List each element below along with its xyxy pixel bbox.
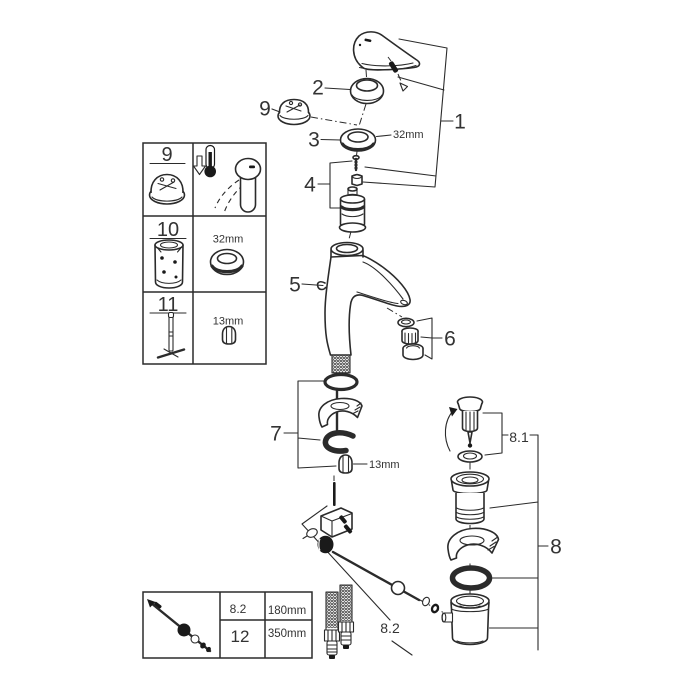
escutcheon-ring (351, 79, 384, 104)
table-handle-drawing (215, 159, 261, 214)
drain-wedge-gasket (448, 528, 499, 560)
callout-7-label: 7 (270, 423, 282, 446)
supply-hoses (325, 585, 354, 659)
callout-8-label: 8 (550, 536, 562, 559)
callout-5-label: 5 (289, 274, 301, 297)
stopper-seal (458, 451, 482, 462)
hose-table-rod-drawing (147, 599, 212, 653)
faucet-body (318, 243, 411, 356)
callout-1-label: 1 (454, 111, 466, 134)
popup-rod-assembly (303, 482, 441, 615)
parts-table-row9-num: 9 (161, 144, 172, 166)
table-ring-drawing (211, 250, 244, 275)
parts-table: 9 10 (143, 143, 266, 364)
callout-2-label: 2 (312, 77, 324, 100)
parts-table-row10-num: 10 (157, 219, 179, 241)
lever-handle (354, 32, 420, 70)
hose-table-row1-num: 8.2 (230, 602, 247, 616)
drain-stopper (445, 397, 482, 451)
hose-table-row2-len: 350mm (268, 628, 306, 640)
drain-housing (442, 594, 489, 645)
bracket-drain-8 (490, 435, 549, 650)
cap-ring-32mm (341, 129, 376, 151)
hose-table: 8.2 180mm 12 350mm (143, 592, 312, 658)
temp-limiter-cap (278, 100, 310, 125)
table-cap-drawing (150, 175, 185, 205)
hose-table-row2-num: 12 (231, 627, 250, 646)
callout-3-label: 3 (308, 129, 320, 152)
parts-table-row10-dim: 32mm (213, 234, 244, 246)
callout-9-label: 9 (259, 98, 271, 121)
dim-32mm-label: 32mm (393, 129, 424, 141)
table-cartridge-sleeve-drawing (155, 240, 183, 288)
hose-table-row1-len: 180mm (268, 605, 306, 617)
dim-13mm-label: 13mm (369, 459, 400, 471)
cartridge-kit (340, 156, 366, 232)
parts-table-row11-dim: 13mm (213, 316, 244, 328)
callout-8-1-label: 8.1 (509, 429, 529, 445)
aerator-kit (398, 318, 423, 359)
table-tool-drawing (158, 313, 184, 358)
callout-8-2-label: 8.2 (380, 620, 400, 636)
drain-flange (451, 472, 489, 524)
shank-braid (332, 355, 350, 373)
callout-6-label: 6 (444, 328, 456, 351)
temperature-limit-icon (194, 146, 217, 178)
table-nut-drawing (223, 327, 236, 345)
mounting-kit (319, 375, 362, 474)
drain-o-ring (453, 568, 490, 588)
callout-4-label: 4 (304, 174, 316, 197)
faucet-exploded-parts-diagram: 1 2 3 4 5 6 7 8 8.1 8.2 9 32mm 13mm 9 (0, 0, 700, 700)
